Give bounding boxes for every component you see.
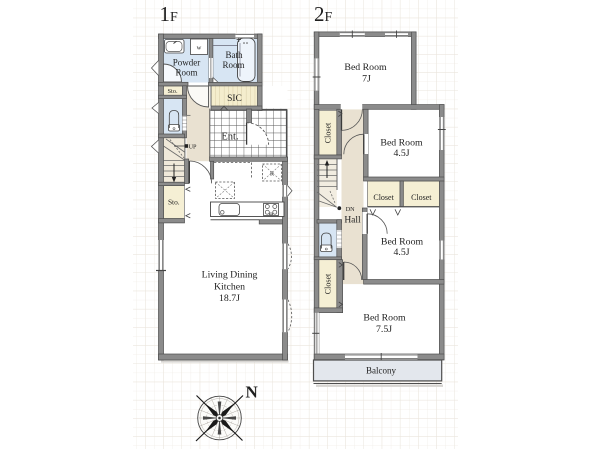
svg-text:4.5J: 4.5J xyxy=(393,247,409,258)
svg-text:Bed Room: Bed Room xyxy=(363,313,406,324)
svg-text:Living Dining: Living Dining xyxy=(202,270,258,281)
svg-text:Ent.: Ent. xyxy=(221,131,238,142)
svg-text:Bath: Bath xyxy=(226,50,243,60)
svg-text:R: R xyxy=(270,172,274,178)
svg-text:w: w xyxy=(197,44,202,51)
svg-text:SIC: SIC xyxy=(227,94,242,104)
svg-text:Bed Room: Bed Room xyxy=(380,138,423,149)
svg-text:Kitchen: Kitchen xyxy=(214,282,245,293)
svg-text:Closet: Closet xyxy=(411,193,432,202)
svg-text:7J: 7J xyxy=(362,73,371,84)
svg-text:Closet: Closet xyxy=(324,122,333,143)
svg-text:7.5J: 7.5J xyxy=(376,324,392,335)
svg-text:Room: Room xyxy=(175,67,197,77)
svg-text:Room: Room xyxy=(222,60,244,70)
svg-text:Sto.: Sto. xyxy=(168,198,180,207)
svg-text:Closet: Closet xyxy=(324,273,333,294)
svg-text:DN: DN xyxy=(346,206,355,213)
svg-text:18.7J: 18.7J xyxy=(219,293,240,304)
svg-text:4.5J: 4.5J xyxy=(393,148,409,159)
svg-text:Balcony: Balcony xyxy=(366,366,396,376)
svg-text:Powder: Powder xyxy=(173,57,201,67)
svg-text:Bed Room: Bed Room xyxy=(344,62,387,73)
svg-text:Closet: Closet xyxy=(373,193,394,202)
svg-text:Sto.: Sto. xyxy=(167,88,178,95)
svg-text:N: N xyxy=(246,383,259,402)
svg-text:UP: UP xyxy=(189,144,197,151)
svg-text:Hall: Hall xyxy=(344,216,361,226)
